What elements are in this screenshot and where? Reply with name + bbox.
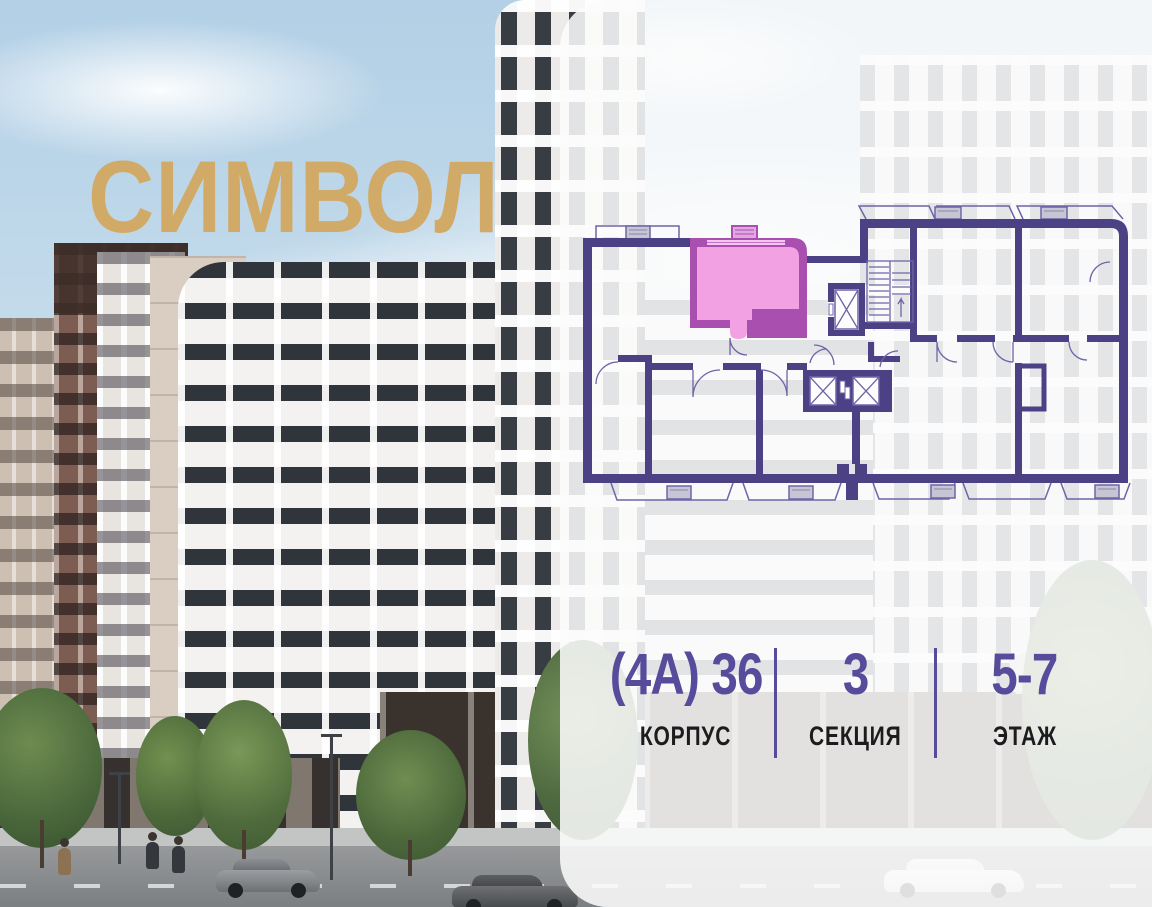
building-value: (4А) 36 — [610, 645, 763, 706]
plan-walls — [583, 219, 1128, 500]
pedestrian-head — [174, 836, 183, 845]
pedestrian — [172, 836, 185, 873]
car-wheel — [547, 899, 562, 907]
car-wheel — [291, 883, 306, 898]
street-lamp-arm — [321, 734, 342, 737]
section-label: СЕКЦИЯ — [809, 721, 901, 752]
brand-logo: СИМВОЛ — [88, 146, 500, 248]
pedestrian-head — [60, 838, 69, 847]
car-sedan — [216, 854, 320, 898]
pedestrian-body — [58, 848, 71, 875]
building-label: КОРПУС — [640, 721, 731, 752]
pedestrian — [146, 832, 159, 869]
street-lamp — [330, 734, 333, 880]
selected-apartment-unit[interactable] — [690, 226, 807, 339]
street-lamp-arm — [109, 772, 130, 775]
floor-value: 5-7 — [991, 645, 1057, 706]
floor-plan — [583, 203, 1145, 508]
car-wheel — [228, 883, 243, 898]
tree — [196, 700, 292, 850]
section-value: 3 — [843, 645, 869, 706]
unit-ac-unit — [732, 226, 757, 239]
info-column-section: 3 СЕКЦИЯ — [777, 645, 934, 758]
info-column-building: (4А) 36 КОРПУС — [598, 645, 774, 758]
floor-label: ЭТАЖ — [993, 721, 1057, 752]
apartment-info-row: (4А) 36 КОРПУС 3 СЕКЦИЯ 5-7 ЭТАЖ — [598, 645, 1112, 758]
car-dark — [452, 868, 578, 907]
pedestrian-body — [172, 846, 185, 873]
pedestrian — [58, 838, 71, 875]
winter-garden — [1019, 366, 1044, 409]
info-panel: (4А) 36 КОРПУС 3 СЕКЦИЯ 5-7 ЭТАЖ — [560, 0, 1152, 907]
tree-trunk — [40, 820, 44, 868]
pedestrian-head — [148, 832, 157, 841]
listing-card: СИМВОЛ — [0, 0, 1152, 907]
car-wheel — [466, 899, 481, 907]
pedestrian-body — [146, 842, 159, 869]
stairs — [867, 261, 913, 322]
street-lamp — [118, 772, 121, 864]
info-column-floor: 5-7 ЭТАЖ — [937, 645, 1112, 758]
tree-trunk — [408, 840, 412, 876]
